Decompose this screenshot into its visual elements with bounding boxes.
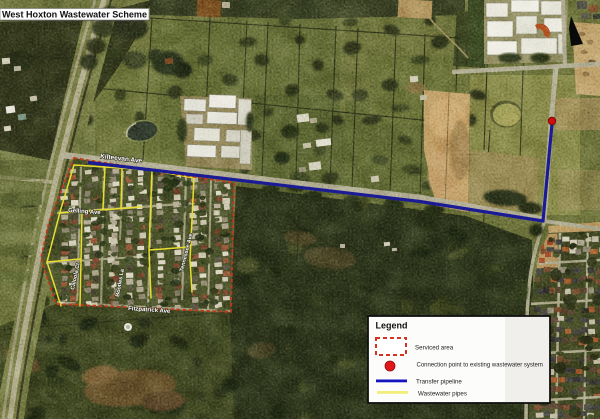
- svg-text:Legend: Legend: [376, 321, 408, 331]
- svg-text:Transfer pipeline: Transfer pipeline: [416, 379, 462, 386]
- svg-text:Connection point to existing w: Connection point to existing wastewater …: [417, 363, 543, 369]
- svg-text:Wastewater pipes: Wastewater pipes: [418, 391, 467, 398]
- svg-text:Serviced area: Serviced area: [415, 345, 454, 352]
- svg-text:West Hoxton Wastewater Scheme: West Hoxton Wastewater Scheme: [2, 10, 147, 21]
